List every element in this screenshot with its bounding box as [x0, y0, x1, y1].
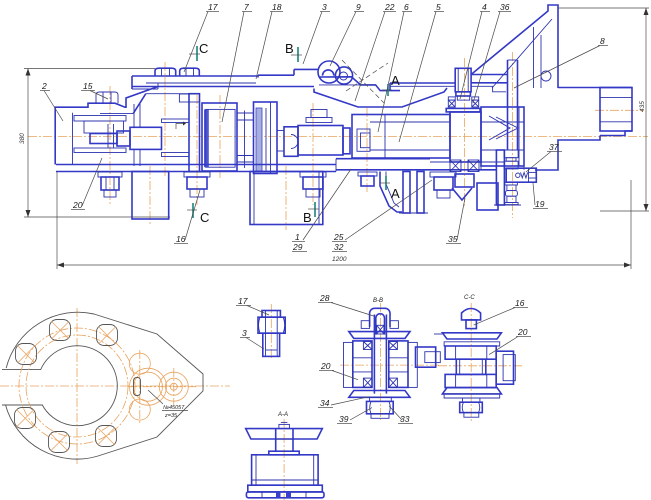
svg-text:C: C: [200, 210, 209, 225]
svg-text:18: 18: [272, 2, 282, 12]
svg-text:17: 17: [208, 2, 218, 12]
svg-text:A: A: [391, 186, 400, 201]
svg-text:1200: 1200: [332, 256, 347, 263]
svg-text:34: 34: [320, 398, 330, 408]
svg-text:25: 25: [333, 232, 344, 242]
svg-text:20: 20: [320, 361, 331, 371]
svg-text:435: 435: [639, 101, 646, 112]
svg-text:380: 380: [19, 133, 26, 144]
svg-text:37: 37: [549, 142, 559, 152]
svg-text:z=35: z=35: [164, 413, 178, 419]
svg-text:3: 3: [322, 2, 327, 12]
svg-text:20: 20: [517, 327, 528, 337]
svg-text:B: B: [303, 210, 312, 225]
svg-text:32: 32: [334, 242, 344, 252]
svg-text:29: 29: [292, 242, 303, 252]
svg-text:A: A: [391, 73, 400, 88]
svg-text:16: 16: [515, 298, 525, 308]
svg-text:1: 1: [295, 232, 300, 242]
svg-text:20: 20: [72, 200, 83, 210]
svg-text:9: 9: [356, 2, 361, 12]
svg-text:17: 17: [238, 296, 248, 306]
svg-text:8: 8: [600, 36, 605, 46]
svg-text:16: 16: [176, 234, 186, 244]
svg-text:36: 36: [500, 2, 510, 12]
svg-text:22: 22: [384, 2, 395, 12]
svg-text:№45057: №45057: [163, 405, 185, 411]
svg-text:7: 7: [244, 2, 249, 12]
svg-text:C: C: [199, 41, 208, 56]
svg-text:A-A: A-A: [277, 412, 288, 418]
svg-text:5: 5: [436, 2, 441, 12]
svg-text:6: 6: [404, 2, 409, 12]
svg-text:35: 35: [448, 234, 458, 244]
svg-text:C-C: C-C: [464, 295, 475, 301]
svg-text:B: B: [285, 41, 294, 56]
svg-text:B-B: B-B: [373, 298, 383, 304]
svg-text:28: 28: [319, 293, 330, 303]
svg-text:4: 4: [482, 2, 487, 12]
svg-text:39: 39: [339, 414, 349, 424]
svg-text:3: 3: [242, 328, 247, 338]
svg-text:19: 19: [535, 199, 545, 209]
svg-text:2: 2: [41, 81, 47, 91]
svg-text:15: 15: [83, 81, 93, 91]
